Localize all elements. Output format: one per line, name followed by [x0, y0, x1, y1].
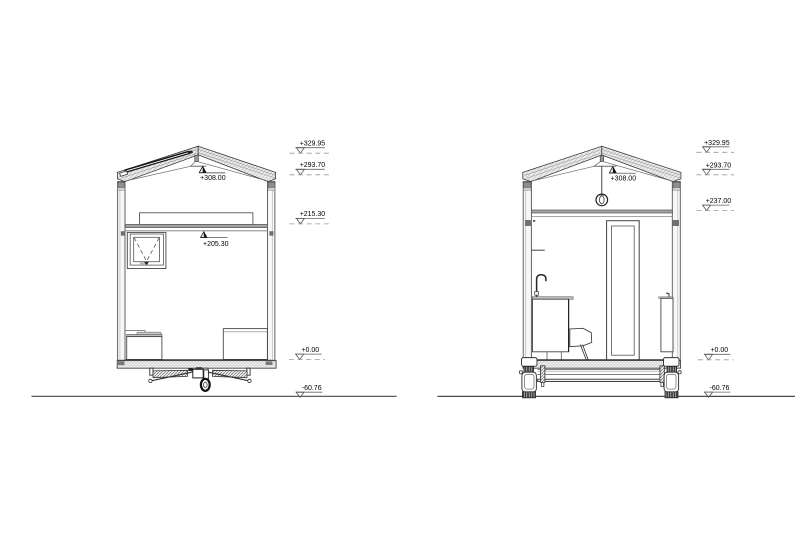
- svg-text:+0.00: +0.00: [301, 347, 319, 354]
- svg-text:+215.30: +215.30: [300, 211, 326, 218]
- svg-text:+237.00: +237.00: [706, 198, 732, 205]
- svg-text:+0.00: +0.00: [710, 347, 728, 354]
- svg-text:+308.00: +308.00: [611, 175, 637, 182]
- svg-text:-60.76: -60.76: [302, 385, 322, 392]
- svg-text:+293.70: +293.70: [706, 162, 732, 169]
- svg-text:-60.76: -60.76: [710, 385, 730, 392]
- svg-text:+308.00: +308.00: [200, 175, 226, 182]
- svg-text:+293.70: +293.70: [300, 162, 326, 169]
- svg-text:+205.30: +205.30: [203, 241, 229, 248]
- svg-text:+329.95: +329.95: [704, 140, 730, 147]
- svg-text:+329.95: +329.95: [300, 140, 326, 147]
